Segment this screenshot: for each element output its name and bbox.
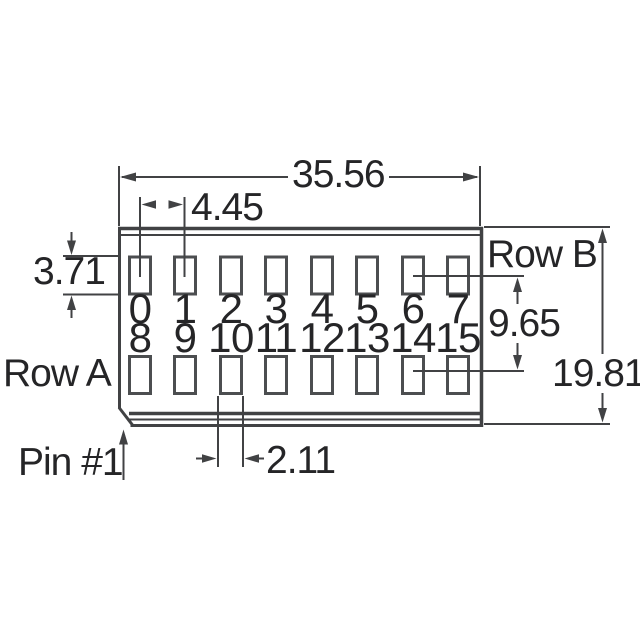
dim-pad-width: 2.11 — [266, 441, 335, 480]
label-row-b: Row B — [487, 235, 597, 274]
arrowhead-icon — [169, 200, 184, 209]
dim-pin-pitch: 4.45 — [191, 188, 263, 227]
pad — [130, 357, 151, 394]
pads-row-a — [130, 357, 469, 394]
dim-pad-width-lines — [196, 396, 264, 467]
pad — [357, 357, 378, 394]
arrowhead-icon — [463, 173, 479, 182]
arrowhead-icon — [120, 173, 136, 182]
arrowhead-icon — [142, 200, 157, 209]
arrowhead-icon — [202, 454, 217, 463]
dim-overall-height: 19.81 — [548, 354, 640, 393]
arrowhead-icon — [598, 229, 607, 244]
arrowhead-icon — [513, 355, 522, 370]
pad — [312, 357, 333, 394]
arrowhead-icon — [598, 408, 607, 423]
arrowhead-icon — [245, 454, 260, 463]
dim-pad-height: 3.71 — [33, 252, 105, 291]
pad — [403, 357, 424, 394]
pad — [266, 357, 287, 394]
dim-overall-width: 35.56 — [288, 155, 389, 194]
label-row-a: Row A — [3, 354, 111, 393]
label-pin1: Pin #1 — [18, 443, 123, 482]
dimensional-drawing: 35.56 4.45 3.71 Row B 9.65 19.81 Row A 2… — [0, 0, 640, 640]
pin-number: 15 — [428, 317, 488, 359]
pad — [221, 357, 242, 394]
pad — [448, 357, 469, 394]
pad — [175, 357, 196, 394]
arrowhead-icon — [513, 278, 522, 293]
arrowhead-icon — [67, 296, 76, 311]
dim-row-spacing: 9.65 — [484, 304, 564, 343]
